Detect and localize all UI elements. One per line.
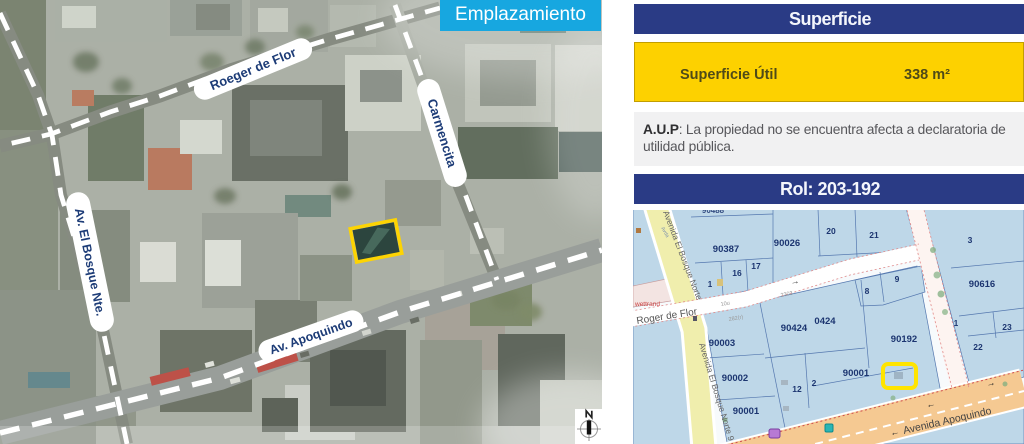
svg-text:23: 23 (1002, 322, 1012, 332)
svg-text:16: 16 (732, 268, 742, 278)
svg-text:0424: 0424 (814, 316, 836, 327)
svg-text:22: 22 (973, 342, 983, 352)
svg-text:17: 17 (751, 261, 761, 271)
svg-text:90001: 90001 (733, 406, 760, 417)
svg-text:1: 1 (708, 280, 713, 289)
svg-text:90488: 90488 (702, 210, 725, 215)
svg-text:90424: 90424 (781, 323, 808, 334)
svg-text:1: 1 (954, 319, 959, 328)
svg-text:90002: 90002 (722, 373, 748, 384)
svg-text:wettrand: wettrand (634, 301, 660, 308)
svg-text:90003: 90003 (709, 338, 735, 349)
svg-text:90387: 90387 (713, 244, 739, 255)
svg-text:12: 12 (792, 384, 802, 394)
svg-text:21: 21 (869, 230, 879, 240)
svg-text:→: → (789, 275, 800, 287)
svg-text:3: 3 (968, 235, 973, 245)
svg-text:8: 8 (865, 286, 870, 296)
svg-text:90192: 90192 (891, 334, 917, 345)
svg-text:90616: 90616 (969, 279, 995, 290)
svg-text:90026: 90026 (774, 238, 800, 249)
svg-text:9: 9 (895, 274, 900, 284)
svg-text:2: 2 (812, 378, 817, 388)
svg-text:90001: 90001 (843, 368, 870, 379)
svg-text:20: 20 (826, 226, 836, 236)
